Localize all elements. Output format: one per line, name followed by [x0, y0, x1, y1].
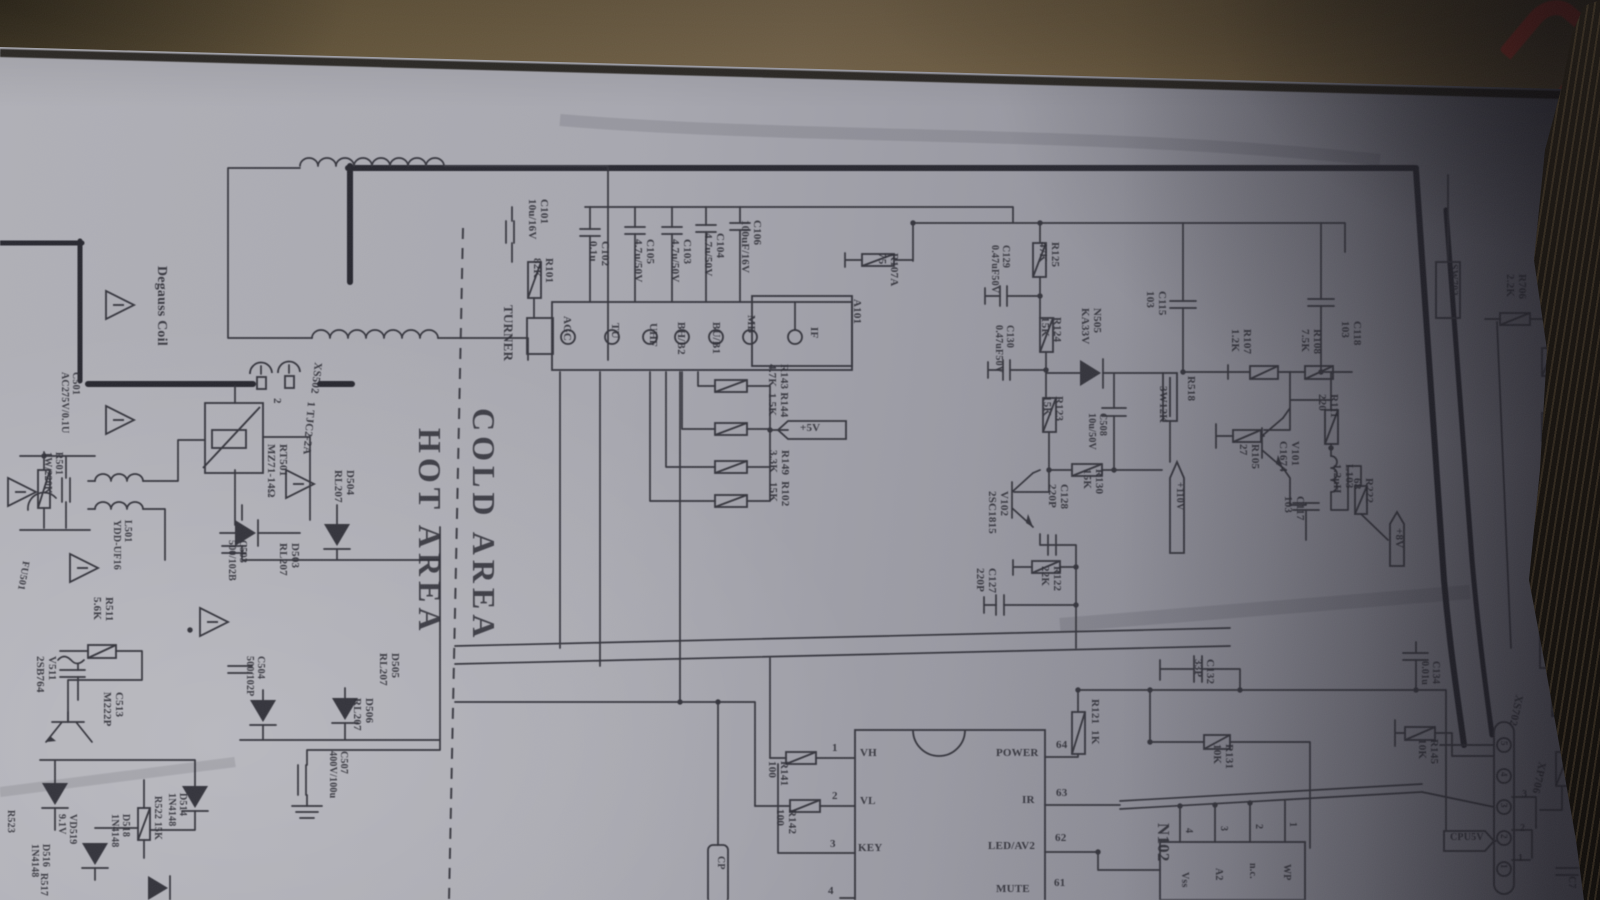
r149-r102-label: R149 R102 3.3K 15K	[767, 450, 790, 506]
r522-label: R522 15K	[152, 796, 163, 840]
c127-label: C127 220P	[974, 568, 997, 593]
c130-label: C130 0.47uF50V	[993, 325, 1014, 373]
d505-label: D505 RL207	[377, 653, 400, 686]
r107a-label: R107A 75	[876, 253, 899, 286]
l501-label: L501 YDD-UF16	[111, 520, 132, 570]
d506-label: D506 RL207	[351, 698, 374, 731]
r700-val: 150K	[1561, 662, 1573, 688]
c7xx-ref: C7	[1566, 876, 1577, 889]
v101-label: V101 C1674	[1277, 441, 1300, 472]
r123-label: R123 15K	[1041, 396, 1064, 421]
c513-label: C513 M222P	[101, 692, 124, 727]
c118-label: C118 103	[1339, 321, 1362, 346]
tuner-pin-mb: MB	[744, 315, 756, 333]
cold-area-title: COLD AREA	[465, 408, 502, 642]
tuner-pin-bub1: BU/B1	[709, 322, 721, 354]
tuner-pin-tu: TU	[608, 323, 620, 339]
sw703-label: SW703	[1569, 273, 1580, 305]
ic-pin-ir: IR	[1022, 795, 1035, 807]
label-layer: COLD AREA HOT AREA Degauss CoilXS50221 T…	[0, 0, 1600, 900]
c132-label: C132 33P	[1192, 659, 1215, 684]
cp-box-label: CP	[715, 856, 726, 870]
r122-label: R122 22K	[1039, 566, 1062, 591]
ic-pin4-num: 4	[828, 886, 834, 898]
rt501-label: RT501 MZ71-14Ω	[265, 444, 288, 498]
c105-label: C105 4.7u/50V	[632, 239, 655, 282]
mem-pin2-num: 2	[1253, 824, 1264, 829]
ic-pin62-num: 62	[1055, 833, 1066, 845]
r501-label: R501 1W/220K	[42, 452, 63, 494]
n102-ref: N102	[1154, 823, 1172, 862]
ic-pin-key: KEY	[858, 843, 882, 855]
r143-r144-label: R143 R144 4.7K 1.5K	[766, 364, 789, 417]
d514-label: D514 1N4148	[166, 793, 187, 826]
c134-label: C134 0.01u	[1419, 661, 1440, 685]
xs702-ref: XS702	[1506, 694, 1524, 727]
ic-pin61-num: 61	[1054, 878, 1065, 890]
ic-pin1-num: 1	[832, 743, 838, 755]
ic-pin-vl: VL	[860, 796, 876, 808]
c129-label: C129 0.47uF50V	[989, 245, 1010, 293]
xs702-pin1: 1	[1499, 864, 1508, 869]
r728a-label: R728A 100	[1564, 744, 1585, 774]
r145-label: R145 10K	[1416, 739, 1439, 764]
schematic-ink-layer: COLD AREA HOT AREA Degauss CoilXS50221 T…	[0, 0, 1600, 900]
tuner-label: TURNER	[501, 305, 515, 361]
c103-label: C103 4.7u/50V	[669, 239, 692, 282]
mem-pin-nc: n.c.	[1247, 863, 1258, 879]
r518-ref: R518	[1184, 376, 1196, 401]
r511-label: R511 5.6K	[91, 597, 114, 622]
flag-5v-label: +5V	[800, 423, 820, 435]
c128-label: C128 220P	[1046, 484, 1069, 509]
sw702-label: SW702	[1448, 264, 1459, 296]
tuner-pin-agc: AGC	[560, 316, 572, 341]
ic-pin-power: POWER	[996, 748, 1039, 760]
ic-pin64-num: 64	[1056, 740, 1067, 752]
vd519-label: VD519 9.1V	[56, 814, 77, 844]
ic-pin63-num: 63	[1056, 788, 1067, 800]
c104-label: C104 4.7u/50V	[702, 233, 725, 276]
d518-label: D518 1N4148	[109, 814, 130, 847]
d504-label: D504 RL207	[332, 470, 355, 503]
r700-ref: R700	[1555, 634, 1567, 659]
r222-label: R222 68	[1351, 478, 1374, 503]
c7xx-val: 10u	[1582, 874, 1593, 890]
conn-num3: 3	[1522, 790, 1527, 801]
ic-pin-vh: VH	[860, 748, 877, 760]
r107-label: R107 1.2K	[1229, 329, 1252, 354]
mem-pin-vss: Vss	[1179, 872, 1190, 888]
ic-pin2-num: 2	[832, 791, 838, 803]
d503-label: D503 RL207	[277, 543, 300, 576]
c102-label: C102 0.1u	[587, 241, 610, 266]
ic-pin-mute: MUTE	[996, 884, 1030, 896]
v102-label: V102 2SC1815	[986, 491, 1009, 534]
c115-label: C115 103	[1144, 291, 1167, 316]
r111-label: R111 220	[1316, 394, 1339, 418]
c501-label: C501 AC275V/0.1U	[59, 372, 80, 433]
flag-110v-label: +110V	[1174, 482, 1185, 510]
xs702-pin5: 5	[1499, 741, 1508, 746]
c504-label: C504 500/102P	[244, 656, 265, 697]
hot-area-title: HOT AREA	[411, 428, 448, 635]
r130-label: R130 15K	[1081, 469, 1104, 494]
r131-label: R131 10K	[1211, 744, 1234, 769]
xp706-ref: XP706	[1529, 761, 1547, 795]
conn-num1: 1	[1518, 854, 1523, 865]
ic-pin-ledav2: LED/AV2	[988, 841, 1035, 853]
tuner-pin-bhb2: BH/B2	[674, 322, 686, 355]
r523-label: R523	[5, 810, 16, 833]
r727-label: R727 470	[1561, 703, 1584, 728]
c117-label: C117 103	[1282, 496, 1305, 521]
r125-label: R125 47K	[1037, 242, 1060, 267]
ic-pin3-num: 3	[830, 839, 836, 851]
r517-label: R517	[38, 873, 49, 896]
r702-label: R702 8.2K	[1553, 519, 1576, 544]
xs702-pin3: 3	[1499, 803, 1508, 808]
xs702-pin4: 4	[1499, 772, 1508, 777]
r124-label: R124 15K	[1039, 317, 1062, 342]
c507-label: C507 400V/100u	[327, 751, 348, 798]
r108-label: R108 7.5K	[1299, 329, 1322, 354]
conn-num2: 2	[1520, 824, 1525, 835]
xs502-ref: XS502	[308, 362, 323, 395]
r704-label: R704 3.9K	[1549, 394, 1572, 419]
mem-pin-a2: A2	[1213, 868, 1224, 881]
photo-of-schematic: COLD AREA HOT AREA Degauss CoilXS50221 T…	[0, 0, 1600, 900]
xs502-pin2: 2	[270, 398, 282, 404]
n505-label: N505 KA33V	[1079, 308, 1102, 344]
mem-pin3-num: 3	[1218, 826, 1229, 831]
r518-val: 3W12K	[1156, 386, 1168, 423]
a101-label: A101	[850, 299, 862, 324]
r105-label: R105 27	[1237, 444, 1260, 469]
c101-label: C101 10u/16V	[526, 199, 549, 240]
mem-pin4-num: 4	[1183, 828, 1194, 833]
xs502-pin1-type: 1 TJC2-2A	[300, 401, 316, 455]
fu501-label: FU501	[15, 560, 30, 591]
v511-label: V511 2SB764	[34, 656, 57, 693]
r705-label: R705 2.7K	[1544, 333, 1567, 358]
r101-label: R101 82K	[531, 258, 554, 283]
r701-label: R701 27K	[1551, 583, 1574, 608]
tuner-pin-if: IF	[807, 327, 819, 338]
r142-label: R142 100	[774, 809, 797, 834]
c503-label: C503 500/102B	[226, 540, 247, 581]
r141-label: R141 100	[766, 761, 789, 786]
flag-cpu5v-label: CPU5V	[1450, 833, 1484, 844]
c106-label: C106 100uF/16V	[739, 220, 762, 273]
flag-8v-label: +8V	[1392, 528, 1404, 548]
tuner-pin-uhf: UHF	[646, 323, 658, 347]
degauss-coil-label: Degauss Coil	[153, 266, 168, 346]
r121-label: R121 1K	[1088, 699, 1100, 745]
mem-pin-wp: WP	[1281, 864, 1292, 881]
c508-label: C508 10u/50V	[1086, 413, 1107, 450]
r703-label: R703 4.7K	[1551, 456, 1574, 481]
mem-pin1-num: 1	[1287, 822, 1298, 827]
xs702-pin2: 2	[1499, 834, 1508, 839]
r706-label: R706 2.2K	[1504, 274, 1527, 299]
